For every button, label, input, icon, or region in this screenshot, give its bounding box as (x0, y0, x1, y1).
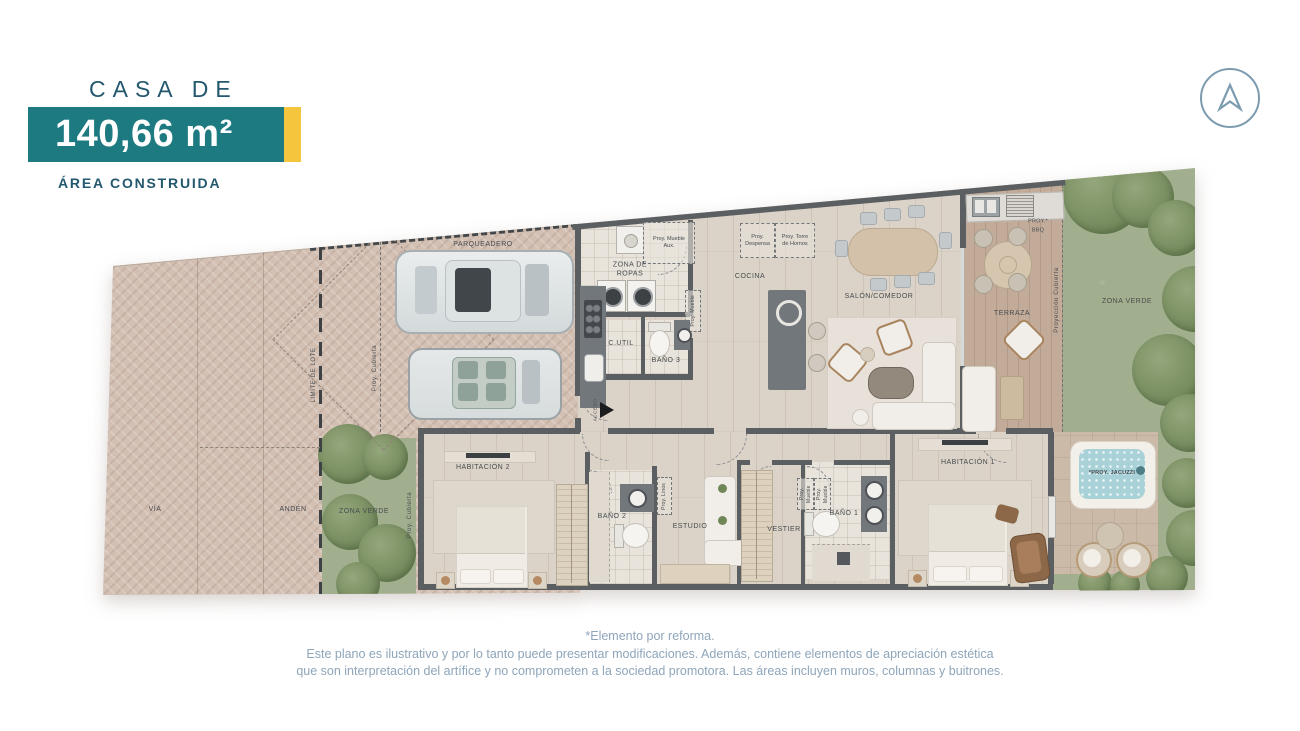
area-banner: 140,66 m² (28, 107, 284, 162)
terrace-sink (972, 197, 1000, 217)
paving-joint-dashed (200, 447, 320, 448)
floorplan-clip: Proy. Mueble Aux. Proy. Despensa Proy. T… (100, 166, 1197, 595)
room-label-terraza: TERRAZA (994, 310, 1030, 319)
sofa-chaise (872, 402, 956, 430)
wall-middle (418, 428, 580, 434)
kitchen-sink (584, 354, 604, 382)
room-label-estudio: ESTUDIO (673, 523, 708, 532)
armchair-seat (1016, 540, 1042, 575)
sink-bowl (987, 200, 996, 213)
room-label-via: VÍA (149, 506, 162, 515)
floorplan: Proy. Mueble Aux. Proy. Despensa Proy. T… (100, 166, 1197, 595)
shower (589, 472, 610, 582)
tree (336, 562, 380, 606)
proy-mueble-label: Proy. Mueble (690, 295, 697, 327)
wall-util-bath3 (641, 316, 645, 374)
proy-despensa-label: Proy. Despensa (744, 234, 772, 248)
dining-chair (918, 272, 935, 285)
dining-chair (884, 208, 901, 221)
dining-chair (894, 275, 911, 288)
area-value: 140,66 m² (28, 113, 233, 156)
bed-blanket (457, 507, 525, 554)
tv (942, 440, 988, 445)
dining-chair (860, 212, 877, 225)
label-proy-cubierta-upper: Proy. Cubierta (372, 345, 378, 391)
brand-logo (1200, 68, 1260, 128)
tree (1148, 200, 1204, 256)
side-table (860, 347, 875, 362)
lamp (533, 576, 542, 585)
island-sink (776, 300, 802, 326)
floor-candle (852, 409, 869, 426)
dining-chair (939, 232, 952, 249)
proy-mueble-box: Proy. Mueble (814, 478, 831, 510)
pillow (460, 569, 491, 584)
wall-middle (608, 428, 714, 434)
proy-mueble-label: Proy. Mueble (816, 479, 830, 509)
suv-sunroof (455, 268, 491, 312)
dining-chair (908, 205, 925, 218)
terrace-sofa (962, 366, 996, 432)
terrace-coffee-table (1000, 376, 1024, 420)
arrow-a-icon (1213, 81, 1247, 115)
chair-cushion (1123, 549, 1141, 567)
room-label-vestier: VESTIER (767, 526, 800, 535)
bath2-basin (628, 489, 647, 508)
proy-mueble-aux-label: Proy. Mueble Aux. (652, 236, 686, 250)
patio-chair (1116, 542, 1152, 578)
bath1-basin (865, 506, 884, 525)
pillow (969, 566, 1003, 582)
washer (627, 280, 656, 312)
table-center (999, 256, 1017, 274)
bar-stool (808, 322, 826, 340)
bedroom1-window (1048, 496, 1056, 538)
room-label-zona-verde-left: ZONA VERDE (339, 508, 389, 517)
wall-closet-top (772, 460, 812, 465)
chair-cushion (1083, 549, 1101, 567)
proy-torre-hornos-box: Proy. Torre de Hornos (775, 223, 815, 258)
tree (1146, 556, 1188, 598)
pillow (493, 569, 524, 584)
tree (1162, 266, 1228, 332)
suv-car (395, 250, 574, 334)
proy-torre-hornos-label: Proy. Torre de Hornos (780, 234, 810, 248)
label-proy-jacuzzi: *PROY. JACUZZI (1089, 469, 1135, 478)
bbq-grill (1006, 195, 1034, 217)
wall-middle (1006, 428, 1053, 434)
suv-windshield (525, 264, 549, 316)
terrace-chair (974, 275, 993, 294)
coffee-table (868, 367, 914, 399)
acceso-label: ACCESO (593, 399, 598, 422)
proy-mueble-aux-box: Proy. Mueble Aux. (643, 222, 695, 264)
wall-bedroom2-left (418, 432, 424, 584)
sedan-seat (458, 383, 478, 401)
label-limite-de-lote: LIMITE DE LOTE (311, 347, 317, 402)
bed-blanket (929, 505, 1005, 552)
pillow (933, 566, 967, 582)
sink-bowl (975, 200, 984, 213)
tree (1160, 394, 1218, 452)
dining-chair (835, 240, 848, 257)
patio-table (1096, 522, 1124, 550)
toilet-bowl (622, 523, 649, 548)
label-proy-bbq: PROY.* BBQ (1024, 218, 1052, 235)
room-label-bano3: BAÑO 3 (652, 357, 681, 366)
bath1-basin (865, 481, 884, 500)
room-label-salon-comedor: SALÓN/COMEDOR (845, 293, 914, 302)
wardrobe (556, 484, 588, 586)
study-desk (660, 564, 730, 584)
room-label-anden: ANDÉN (279, 506, 306, 515)
room-label-habitacion2: HABITACIÓN 2 (456, 464, 510, 473)
bar-stool (808, 354, 826, 372)
sedan-car (408, 348, 562, 420)
page-title: CASA DE (89, 76, 238, 103)
room-label-zona-de-ropas: ZONA DE ROPAS (607, 262, 653, 279)
tv (466, 453, 510, 458)
room-label-bano2: BAÑO 2 (598, 513, 627, 522)
shower-bench (837, 552, 850, 565)
washer-door (633, 287, 653, 307)
label-proyeccion-cubierta: Proyección Cubierta (1054, 267, 1060, 332)
wall-bath1-bedroom1 (890, 432, 895, 584)
jacuzzi-control (1136, 466, 1145, 475)
disclaimer-line2: Este plano es ilustrativo y por lo tanto… (0, 646, 1300, 664)
lamp (913, 574, 922, 583)
room-label-habitacion1: HABITACIÓN 1 (941, 459, 995, 468)
dining-chair (870, 278, 887, 291)
proy-linos-box: Proy. Linos (657, 477, 672, 515)
paving-joint (197, 166, 198, 595)
sliding-glass-door (961, 248, 964, 366)
proy-mueble-label: Proy. Mueble (799, 479, 813, 509)
wall-closet-top (737, 460, 750, 465)
nightstand (908, 570, 927, 587)
leather-armchair (1009, 532, 1051, 585)
bed (456, 506, 528, 588)
bath3-basin (677, 328, 692, 343)
entry-arrow-icon (600, 402, 614, 418)
sedan-seat (458, 361, 478, 379)
room-label-cutil: C.UTIL (608, 340, 633, 349)
dining-table (848, 228, 938, 276)
wardrobe-rod (756, 471, 757, 579)
plant (718, 484, 727, 493)
nightstand (528, 572, 547, 589)
room-label-bano1: BAÑO 1 (830, 510, 859, 519)
room-label-cocina: COCINA (735, 273, 765, 282)
lamp (441, 576, 450, 585)
heater-dial (624, 234, 638, 248)
plant (718, 516, 727, 525)
terrace-chair (1008, 273, 1027, 292)
suv-rear-glass (415, 266, 437, 314)
proy-despensa-box: Proy. Despensa (740, 223, 775, 258)
washer-door (603, 287, 623, 307)
disclaimer: *Elemento por reforma. Este plano es ilu… (0, 628, 1300, 681)
terrace-chair (974, 229, 993, 248)
disclaimer-line1: *Elemento por reforma. (0, 628, 1300, 646)
water-heater (616, 226, 644, 254)
tree (1162, 458, 1212, 508)
disclaimer-line3: que son interpretación del artífice y no… (0, 663, 1300, 681)
wardrobe-rod (571, 485, 572, 583)
room-label-zona-verde-right: ZONA VERDE (1102, 298, 1152, 307)
sedan-seat (486, 383, 506, 401)
paving-joint (263, 166, 264, 595)
toilet-bowl (649, 330, 670, 357)
wall-bath1-top (834, 460, 894, 465)
proy-mueble-box: Proy. Mueble (797, 478, 814, 510)
proy-linos-label: Proy. Linos (661, 483, 668, 510)
room-label-parqueadero: PARQUEADERO (453, 241, 512, 250)
label-proy-cubierta-lower: Proy. Cubierta (407, 492, 413, 538)
banner-accent-stripe (284, 107, 301, 162)
stove (584, 300, 602, 338)
page: CASA DE 140,66 m² ÁREA CONSTRUIDA (0, 0, 1300, 731)
sedan-seat (486, 361, 506, 379)
sedan-windshield (522, 360, 540, 404)
nightstand (436, 572, 455, 589)
